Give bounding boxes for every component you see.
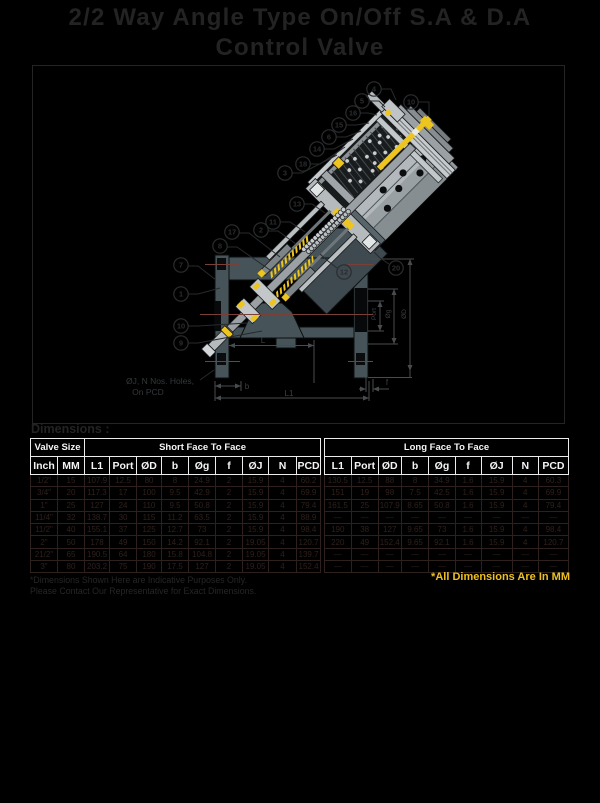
svg-text:10: 10 bbox=[407, 98, 415, 107]
svg-text:7: 7 bbox=[179, 261, 183, 270]
svg-text:18: 18 bbox=[299, 160, 307, 169]
svg-text:3: 3 bbox=[283, 169, 287, 178]
svg-text:f: f bbox=[386, 378, 389, 387]
svg-text:12: 12 bbox=[340, 268, 348, 277]
svg-text:b: b bbox=[245, 382, 250, 391]
svg-text:10: 10 bbox=[177, 322, 185, 331]
svg-text:11: 11 bbox=[269, 218, 277, 227]
svg-text:On PCD: On PCD bbox=[132, 387, 164, 397]
svg-text:Øg: Øg bbox=[385, 309, 392, 318]
svg-text:16: 16 bbox=[349, 109, 357, 118]
svg-text:ØJ, N Nos. Holes,: ØJ, N Nos. Holes, bbox=[126, 376, 194, 386]
svg-text:Port: Port bbox=[371, 308, 378, 320]
svg-text:15: 15 bbox=[335, 121, 343, 130]
svg-text:17: 17 bbox=[228, 228, 236, 237]
svg-text:6: 6 bbox=[327, 133, 331, 142]
svg-text:20: 20 bbox=[392, 264, 400, 273]
svg-text:2: 2 bbox=[259, 226, 263, 235]
svg-text:13: 13 bbox=[293, 200, 301, 209]
svg-text:ØD: ØD bbox=[401, 309, 408, 319]
svg-text:8: 8 bbox=[218, 242, 222, 251]
svg-text:1: 1 bbox=[179, 290, 183, 299]
svg-text:4: 4 bbox=[372, 85, 377, 94]
svg-text:L1: L1 bbox=[285, 389, 294, 398]
svg-text:L: L bbox=[261, 336, 266, 345]
svg-text:9: 9 bbox=[179, 339, 183, 348]
svg-text:5: 5 bbox=[360, 97, 364, 106]
svg-text:14: 14 bbox=[313, 145, 322, 154]
